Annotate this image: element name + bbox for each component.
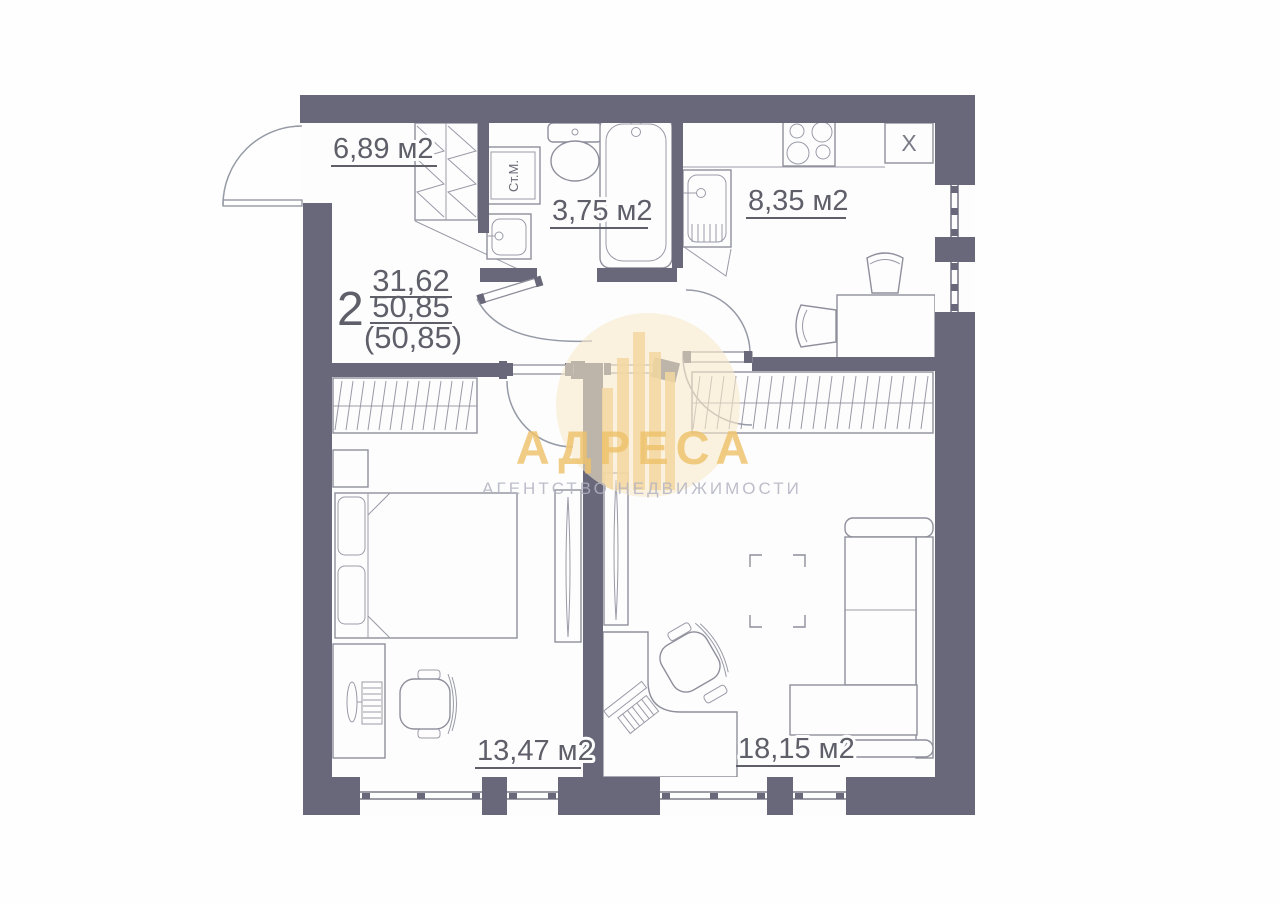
kitchen-area-label: 8,35 м2 — [748, 185, 849, 217]
tall-cabinet-bedroom — [555, 490, 581, 642]
bathroom-sink — [487, 214, 531, 259]
toilet-icon — [548, 123, 602, 181]
bed — [335, 493, 517, 638]
floor-plan: Ст.М. X — [0, 0, 1280, 904]
hallway-area-label: 6,89 м2 — [333, 133, 434, 165]
dining-chair-top — [867, 253, 903, 293]
bedroom-area-label: 13,47 м2 — [477, 735, 594, 767]
nightstand — [333, 450, 368, 487]
dining-chair-left — [796, 305, 836, 347]
bedroom-desk — [333, 644, 385, 758]
washing-machine: Ст.М. — [486, 147, 540, 204]
floor-plan-page: Ст.М. X — [0, 0, 1280, 904]
window — [951, 262, 958, 312]
watermark-subtitle: АГЕНТСТВО НЕДВИЖИМОСТИ — [482, 479, 802, 498]
vent-label: X — [901, 130, 916, 156]
living-area-label: 18,15 м2 — [738, 733, 855, 765]
total-area: 50,85 — [372, 289, 450, 324]
vent-shaft: X — [885, 123, 933, 163]
total-area-paren: (50,85) — [364, 320, 462, 355]
stove — [783, 118, 835, 166]
rooms-count: 2 — [337, 283, 364, 336]
bedroom-wardrobe — [333, 378, 477, 433]
bathroom-area-label: 3,75 м2 — [552, 195, 653, 227]
kitchen-table — [837, 295, 935, 366]
entrance-door — [223, 123, 332, 206]
washing-machine-label: Ст.М. — [506, 160, 521, 192]
window — [951, 185, 958, 237]
watermark-title: АДРЕСА — [516, 421, 757, 474]
bathtub — [600, 117, 672, 268]
